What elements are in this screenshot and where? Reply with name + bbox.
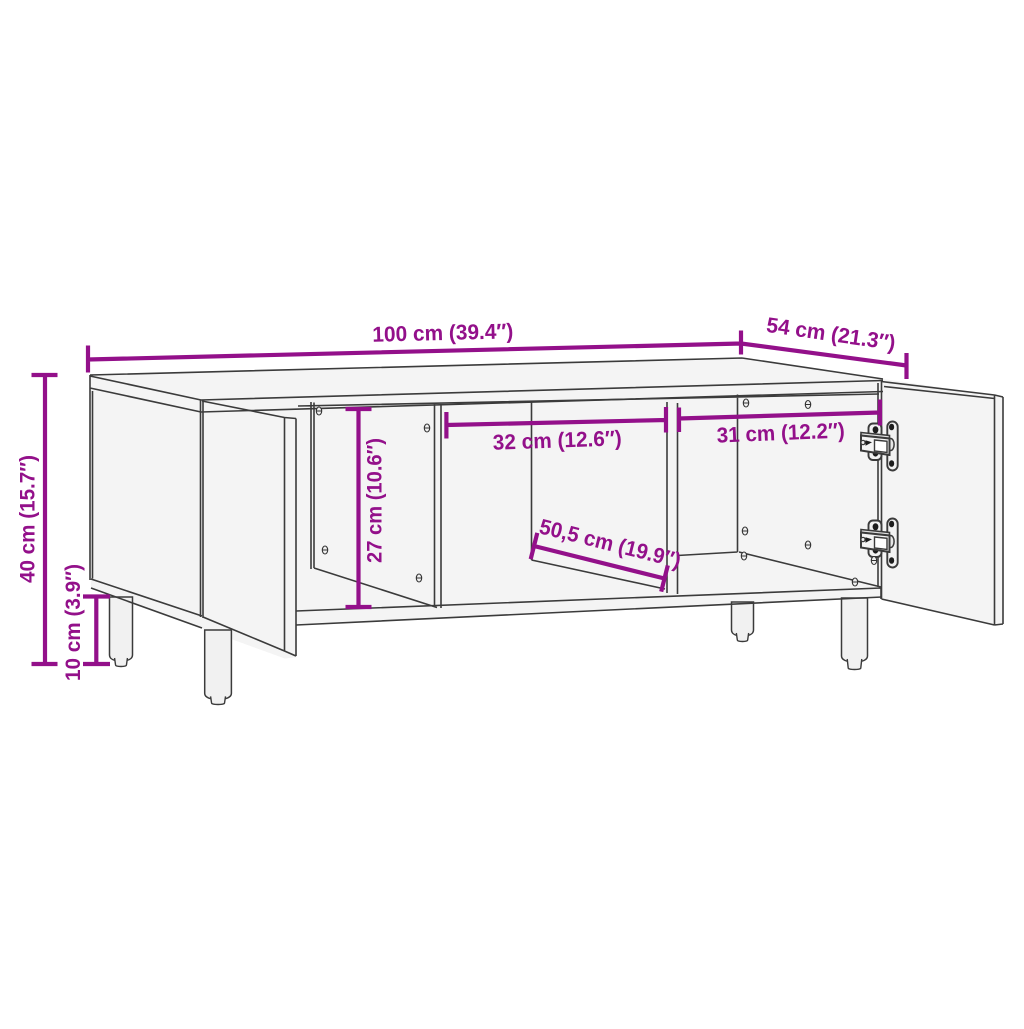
svg-text:31 cm (12.2″): 31 cm (12.2″): [716, 418, 845, 447]
svg-text:40 cm (15.7″): 40 cm (15.7″): [16, 455, 40, 583]
svg-text:100 cm (39.4″): 100 cm (39.4″): [372, 319, 514, 346]
svg-text:10 cm (3.9″): 10 cm (3.9″): [61, 564, 85, 681]
svg-text:27 cm (10.6″): 27 cm (10.6″): [363, 438, 387, 563]
svg-text:32 cm (12.6″): 32 cm (12.6″): [492, 426, 622, 454]
